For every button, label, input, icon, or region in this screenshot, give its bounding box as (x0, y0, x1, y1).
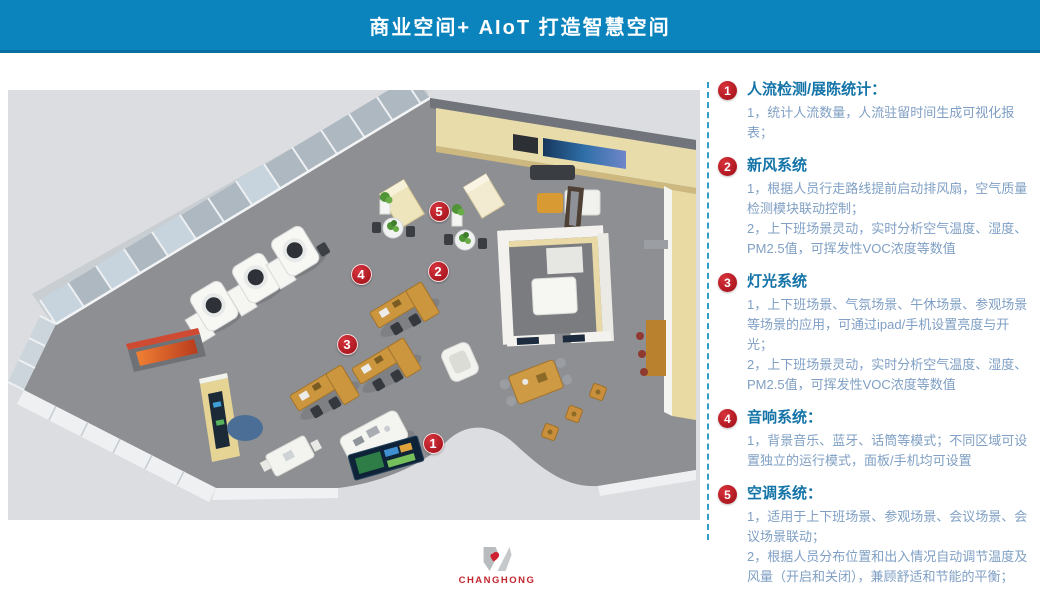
page-title: 商业空间+ AIoT 打造智慧空间 (369, 11, 670, 40)
system-description-line: 1，上下班场景、气氛场景、午休场景、参观场景等场景的应用，可通过ipad/手机设… (747, 295, 1030, 355)
wall-monitor (563, 334, 585, 342)
system-title: 空调系统： (747, 484, 1030, 503)
plan-marker-5: 5 (429, 201, 450, 222)
system-item: 3灯光系统1，上下班场景、气氛场景、午休场景、参观场景等场景的应用，可通过ipa… (718, 272, 1030, 395)
system-description-line: 1，背景音乐、蓝牙、话筒等模式；不同区域可设置独立的运行模式，面板/手机均可设置 (747, 431, 1030, 471)
plan-marker-2: 2 (428, 261, 449, 282)
plan-marker-4: 4 (351, 264, 372, 285)
system-item: 5空调系统：1，适用于上下班场景、参观场景、会议场景、会议场景联动；2，根据人员… (718, 484, 1030, 587)
item-number-badge: 3 (718, 273, 737, 292)
header-bar: 商业空间+ AIoT 打造智慧空间 (0, 0, 1040, 53)
system-item: 4音响系统：1，背景音乐、蓝牙、话筒等模式；不同区域可设置独立的运行模式，面板/… (718, 408, 1030, 471)
slide: 商业空间+ AIoT 打造智慧空间 (0, 0, 1040, 589)
bar-chair (640, 368, 648, 376)
systems-list: 1人流检测/展陈统计：1，统计人流数量，人流驻留时间生成可视化报表；2新风系统1… (718, 80, 1030, 589)
sofa (530, 165, 575, 180)
system-description-line: 2，上下班场景灵动，实时分析空气温度、湿度、PM2.5值，可挥发性VOC浓度等数… (747, 219, 1030, 259)
system-item: 1人流检测/展陈统计：1，统计人流数量，人流驻留时间生成可视化报表； (718, 80, 1030, 143)
system-description-line: 1，适用于上下班场景、参观场景、会议场景、会议场景联动； (747, 507, 1030, 547)
panel-separator (707, 82, 709, 540)
plan-marker-1: 1 (423, 433, 444, 454)
system-description-line: 2，根据人员分布位置和出入情况自动调节温度及风量（开启和关闭），兼顾舒适和节能的… (747, 547, 1030, 587)
coffee-table (537, 193, 563, 213)
brand-footer: CHANGHONG (459, 546, 536, 586)
bar-counter (646, 320, 666, 376)
conference-table (532, 277, 578, 315)
brand-name: CHANGHONG (459, 575, 536, 586)
wall-shelf (644, 240, 668, 249)
system-title: 灯光系统 (747, 272, 1030, 291)
floor-plan-svg (8, 90, 700, 520)
bar-chair (636, 332, 644, 340)
meeting-room (497, 225, 614, 347)
system-title: 新风系统 (747, 156, 1030, 175)
changhong-logo-icon (481, 546, 513, 572)
system-description-line: 1，统计人流数量，人流驻留时间生成可视化报表； (747, 103, 1030, 143)
plan-marker-3: 3 (337, 334, 358, 355)
system-description-line: 1，根据人员行走路线提前启动排风扇，空气质量检测模块联动控制； (747, 179, 1030, 219)
item-number-badge: 4 (718, 409, 737, 428)
system-title: 音响系统： (747, 408, 1030, 427)
round-rug (227, 415, 263, 441)
system-title: 人流检测/展陈统计： (747, 80, 1030, 99)
item-number-badge: 1 (718, 81, 737, 100)
item-number-badge: 5 (718, 485, 737, 504)
floor-plan-image: 12345 (8, 90, 700, 520)
item-number-badge: 2 (718, 157, 737, 176)
system-item: 2新风系统1，根据人员行走路线提前启动排风扇，空气质量检测模块联动控制；2，上下… (718, 156, 1030, 259)
room-divider (546, 246, 583, 274)
wall-monitor (517, 337, 539, 345)
bar-chair (638, 350, 646, 358)
system-description-line: 2，上下班场景灵动，实时分析空气温度、湿度、PM2.5值，可挥发性VOC浓度等数… (747, 355, 1030, 395)
